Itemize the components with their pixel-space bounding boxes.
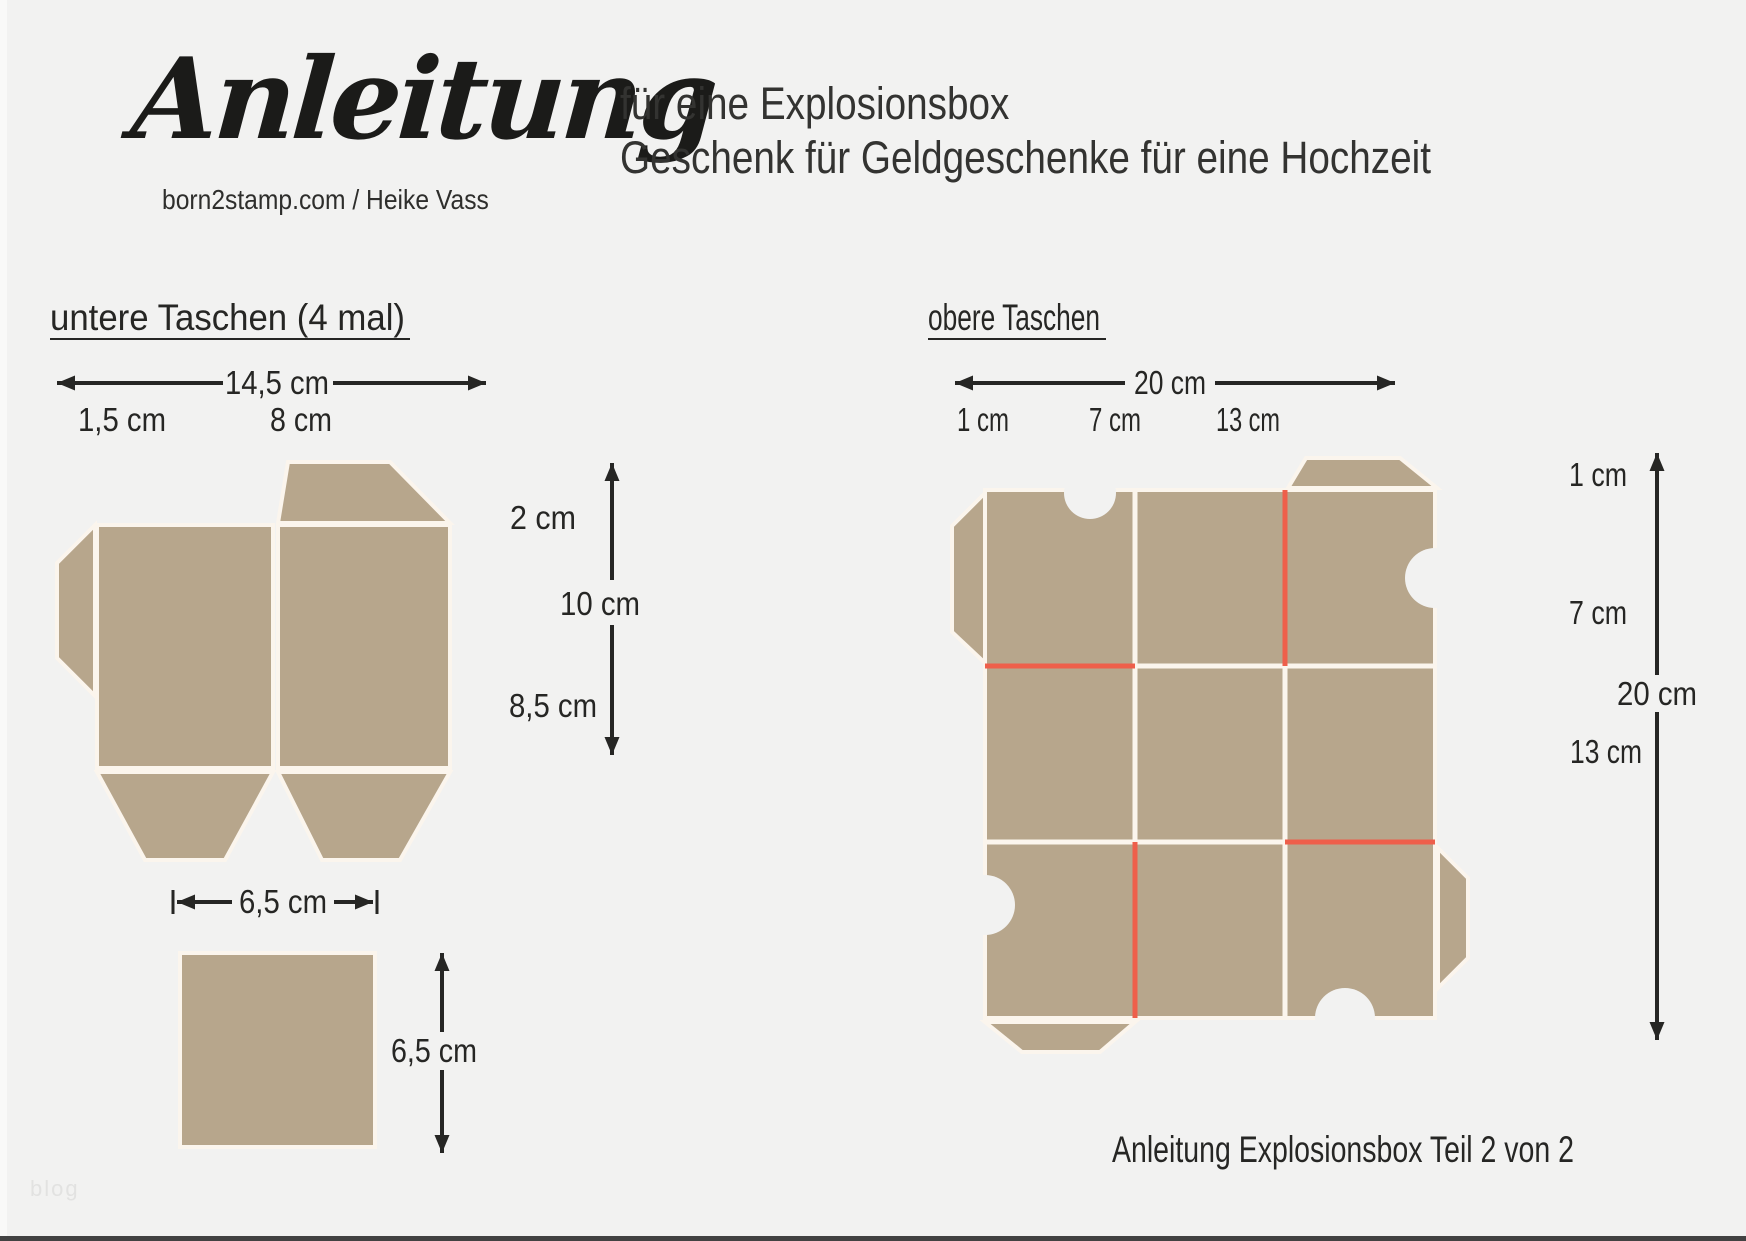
lid-grid-body: [985, 490, 1435, 1018]
left-section-heading: untere Taschen (4 mal): [50, 297, 405, 338]
pouch-top-flap: [278, 462, 450, 523]
left-width-mark-1: 1,5 cm: [78, 401, 166, 438]
lid-top-flap: [1288, 458, 1437, 488]
thumb-notch-top: [1064, 467, 1116, 519]
pouch-panel-left: [97, 525, 273, 768]
lid-bottom-flap: [985, 1022, 1135, 1052]
bottom-border-bar: [0, 1236, 1746, 1241]
templates-diagram: untere Taschen (4 mal) 14,5 cm 1,5 cm 8 …: [0, 280, 1746, 1200]
thumb-notch-bottom: [1315, 988, 1375, 1048]
left-height-mark-top: 2 cm: [510, 499, 576, 536]
lid-left-flap: [952, 493, 985, 663]
thumb-notch-left: [955, 875, 1015, 935]
left-width-total-label: 14,5 cm: [225, 364, 329, 401]
right-width-total-label: 20 cm: [1134, 364, 1206, 401]
subtitle-line-2: Geschenk für Geldgeschenke für eine Hoch…: [620, 132, 1431, 184]
right-height-mark-2: 7 cm: [1569, 594, 1627, 631]
pouch-panel-right: [278, 525, 450, 768]
lid-template: [952, 458, 1468, 1052]
subtitle-line-1: für eine Explosionsbox: [620, 78, 1009, 130]
right-height-total-label: 20 cm: [1617, 675, 1697, 712]
right-height-mark-1: 1 cm: [1569, 456, 1627, 493]
pouch-left-flap: [57, 525, 95, 696]
blog-watermark: blog: [30, 1176, 80, 1202]
lid-right-flap: [1438, 848, 1468, 988]
brand-byline: born2stamp.com / Heike Vass: [162, 184, 489, 216]
base-square: [180, 953, 375, 1147]
square-height-label: 6,5 cm: [391, 1032, 477, 1069]
pouch-bottom-flap-right: [278, 772, 450, 860]
pouch-template: [57, 462, 450, 860]
footer-caption: Anleitung Explosionsbox Teil 2 von 2: [1112, 1129, 1574, 1170]
pouch-bottom-flap-left: [97, 772, 273, 860]
right-width-mark-2: 7 cm: [1089, 401, 1141, 438]
left-edge-strip: [0, 0, 7, 1236]
right-width-mark-1: 1 cm: [957, 401, 1009, 438]
right-section-heading: obere Taschen: [928, 297, 1100, 338]
left-width-mark-2: 8 cm: [270, 401, 332, 438]
left-height-total-label: 10 cm: [560, 585, 640, 622]
left-height-mark-bottom: 8,5 cm: [509, 687, 597, 724]
right-height-mark-3: 13 cm: [1570, 733, 1642, 770]
thumb-notch-right: [1405, 548, 1465, 608]
square-width-label: 6,5 cm: [239, 883, 327, 920]
right-width-mark-3: 13 cm: [1216, 401, 1280, 438]
instruction-sheet: Anleitung born2stamp.com / Heike Vass fü…: [0, 0, 1746, 1241]
